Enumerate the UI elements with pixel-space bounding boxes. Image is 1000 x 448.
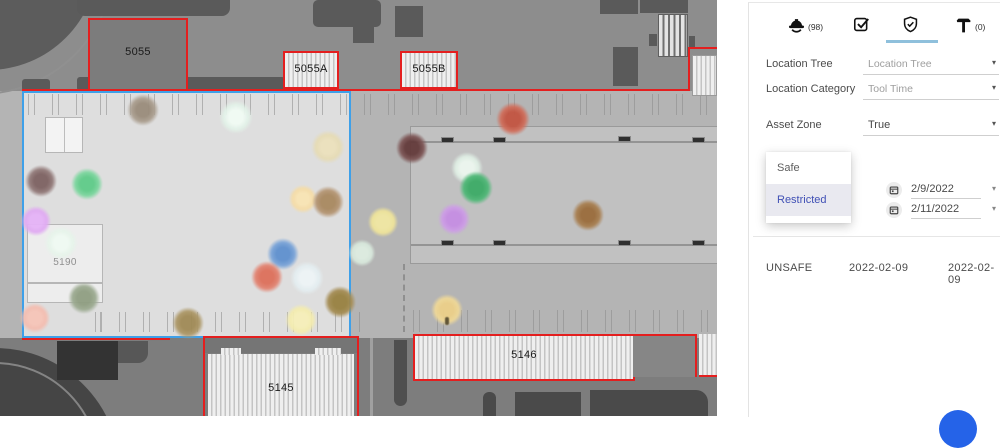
asset-dot[interactable] [392, 128, 432, 168]
asset-dot[interactable] [215, 96, 257, 138]
chevron-down-icon: ▾ [992, 83, 996, 92]
date-from-input[interactable]: 2/9/2022 [911, 183, 981, 199]
zone-type-dropdown: Safe Restricted [766, 152, 851, 223]
asset-dot[interactable] [434, 199, 474, 239]
asset-dot[interactable] [21, 161, 61, 201]
record-date-start: 2022-02-09 [849, 262, 908, 274]
calendar-icon[interactable] [886, 182, 902, 198]
chevron-down-icon: ▾ [992, 58, 996, 67]
date-to-row: 2/11/2022 ▾ [886, 202, 996, 221]
person-icon [445, 317, 449, 325]
dropdown-option-restricted[interactable]: Restricted [766, 184, 851, 216]
facility-map[interactable]: 5190 5055 5055A 5055B 5146 5145 [0, 0, 717, 416]
location-tree-select[interactable]: Location Tree ▾ [863, 56, 999, 75]
asset-dot[interactable] [364, 203, 402, 241]
checkbox-icon [852, 15, 871, 39]
asset-dot[interactable] [123, 90, 163, 130]
asset-zone-label: Asset Zone [766, 119, 822, 131]
tab-tasks[interactable] [852, 15, 873, 39]
location-tree-label: Location Tree [766, 58, 833, 70]
worker-helmet-icon [787, 15, 806, 39]
date-to-input[interactable]: 2/11/2022 [911, 203, 981, 219]
asset-zone-value: True [868, 119, 890, 131]
asset-dot[interactable] [492, 98, 534, 140]
tab-tools[interactable]: (0) [954, 15, 985, 39]
asset-dot[interactable] [345, 236, 379, 270]
tab-workers-count: (98) [808, 22, 823, 32]
tab-tools-count: (0) [975, 22, 985, 32]
asset-dot[interactable] [427, 290, 467, 330]
tool-icon [954, 15, 973, 39]
location-category-value: Tool Time [868, 83, 913, 95]
location-category-select[interactable]: Tool Time ▾ [863, 81, 999, 100]
tab-safety[interactable] [901, 15, 922, 39]
active-tab-underline [886, 40, 938, 43]
chevron-down-icon: ▾ [992, 119, 996, 128]
chevron-down-icon[interactable]: ▾ [992, 204, 996, 213]
location-tree-value: Location Tree [868, 58, 932, 70]
asset-dot[interactable] [64, 278, 104, 318]
asset-dot[interactable] [307, 126, 349, 168]
record-status: UNSAFE [766, 262, 812, 274]
asset-dot[interactable] [247, 257, 287, 297]
dropdown-option-safe[interactable]: Safe [766, 152, 851, 184]
tab-workers[interactable]: (98) [787, 15, 823, 39]
date-from-row: 2/9/2022 ▾ [886, 182, 996, 201]
asset-zone-select[interactable]: True ▾ [863, 117, 999, 136]
calendar-icon[interactable] [886, 202, 902, 218]
asset-dot[interactable] [320, 282, 360, 322]
divider [753, 236, 1000, 237]
asset-dot[interactable] [16, 299, 54, 337]
filter-panel: (98) (0) Location Tree Location Tree ▾ [748, 2, 1000, 417]
asset-dot[interactable] [568, 195, 608, 235]
asset-dot[interactable] [40, 222, 82, 264]
asset-dot[interactable] [281, 300, 321, 340]
shield-check-icon [901, 15, 920, 39]
asset-dots-layer [0, 0, 717, 416]
asset-dot[interactable] [67, 164, 107, 204]
location-category-label: Location Category [766, 83, 855, 95]
asset-dot[interactable] [308, 182, 348, 222]
record-date-end: 2022-02-09 [948, 262, 1000, 286]
asset-dot[interactable] [168, 303, 208, 343]
chevron-down-icon[interactable]: ▾ [992, 184, 996, 193]
